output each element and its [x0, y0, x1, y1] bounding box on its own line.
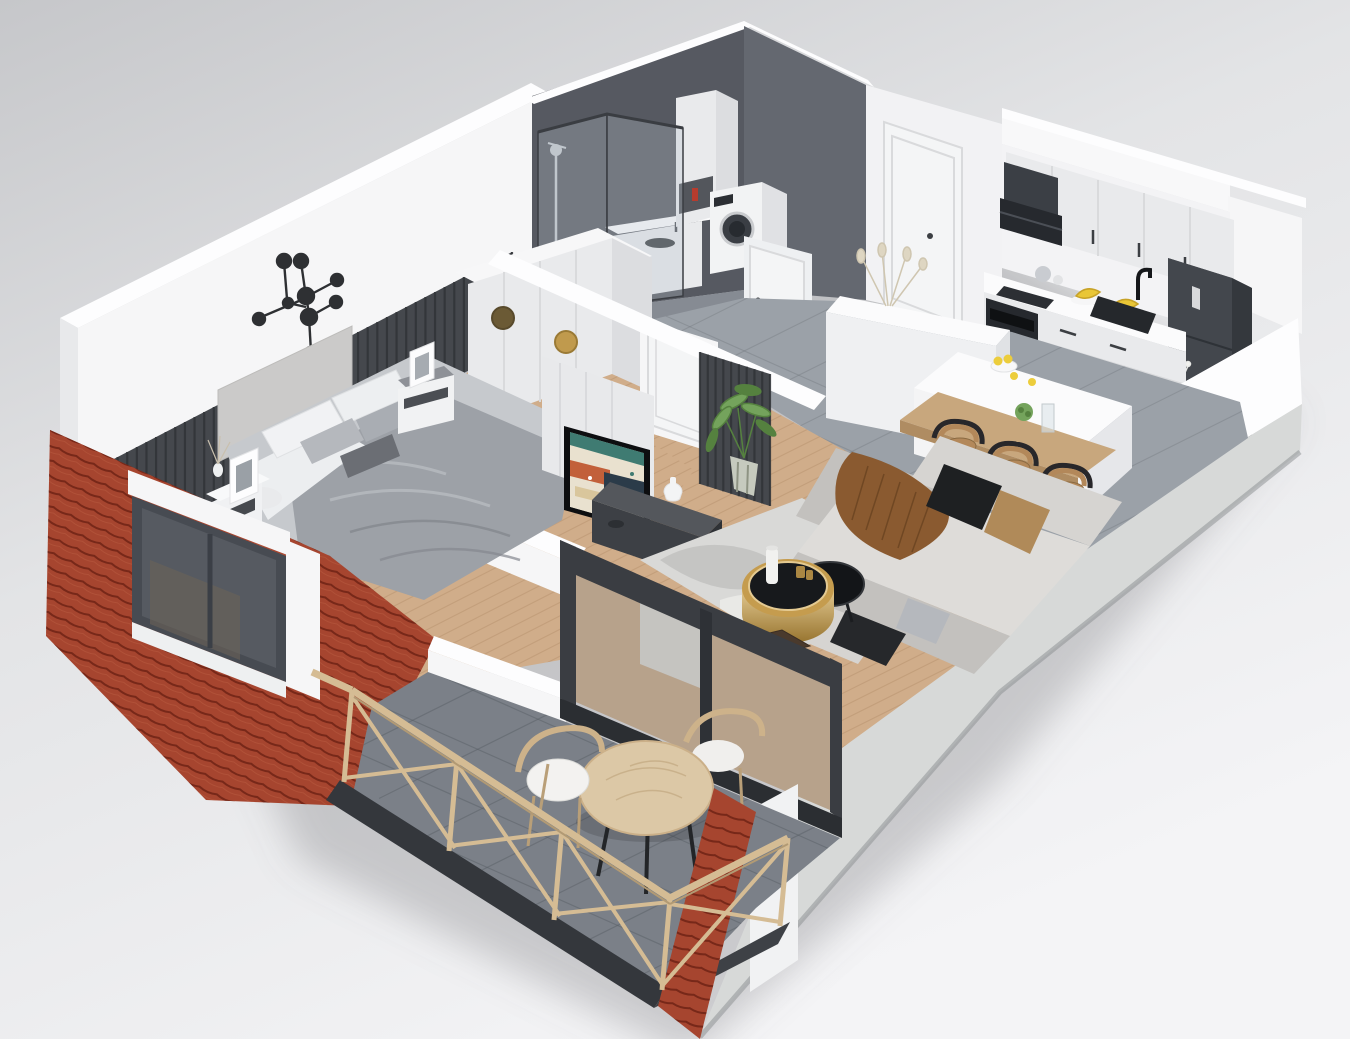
dried-flower-vase: [213, 463, 223, 477]
glass-candle-holder: [1042, 404, 1054, 432]
succulent-bowl: [1015, 403, 1033, 421]
round-bronze-handle: [492, 307, 514, 329]
round-brass-handle: [555, 331, 577, 353]
floorplan-render: [0, 0, 1350, 1039]
floorplan-canvas: [0, 0, 1350, 1039]
white-candle: [766, 548, 778, 584]
dark-bowl: [608, 520, 624, 528]
